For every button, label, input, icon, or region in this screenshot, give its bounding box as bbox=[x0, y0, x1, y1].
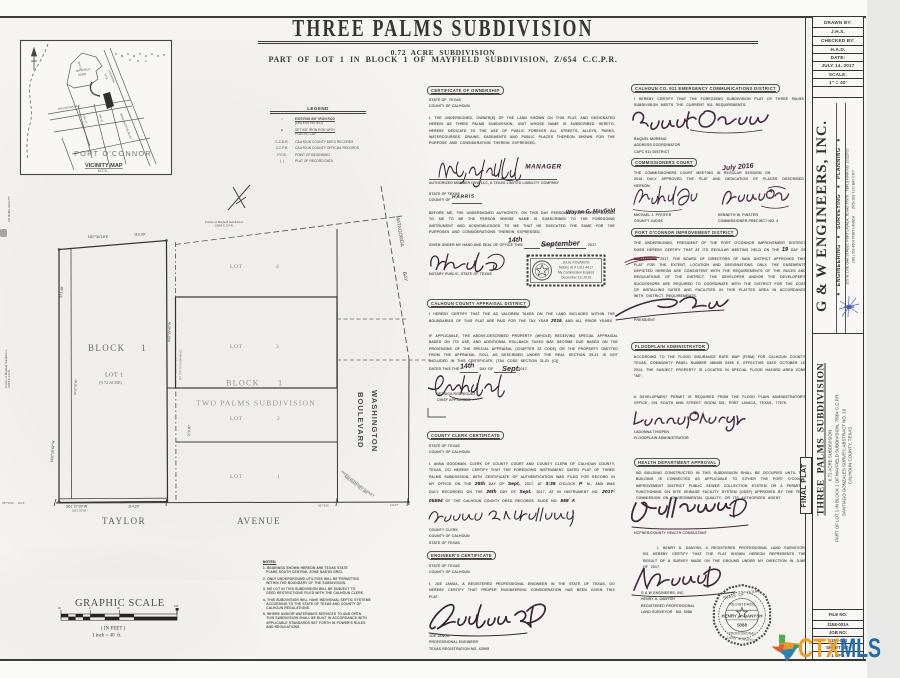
svg-text:Z/654 C.C.P.R.: Z/654 C.C.P.R. bbox=[215, 224, 234, 228]
svg-text:REGISTERED: REGISTERED bbox=[729, 601, 755, 606]
svg-text:LOT: LOT bbox=[230, 474, 243, 480]
svg-text:2: 2 bbox=[277, 416, 280, 422]
svg-text:(N32°30'W): (N32°30'W) bbox=[73, 379, 78, 395]
svg-text:40: 40 bbox=[58, 606, 61, 610]
svg-text:4: 4 bbox=[276, 264, 279, 270]
svg-text:LOT: LOT bbox=[230, 264, 243, 270]
svg-text:CTX: CTX bbox=[798, 633, 840, 663]
svg-text:160: 160 bbox=[174, 604, 179, 608]
svg-text:HENRY A. DANYSH: HENRY A. DANYSH bbox=[721, 613, 762, 618]
svg-text:(10' UTILITY EASEMENT): (10' UTILITY EASEMENT) bbox=[178, 349, 183, 380]
svg-text:LOT: LOT bbox=[230, 344, 243, 350]
svg-text:113.39': 113.39' bbox=[134, 233, 146, 237]
svg-text:ABSTRACT NO. 160: ABSTRACT NO. 160 bbox=[343, 475, 368, 496]
svg-text:1 inch = 40 ft.: 1 inch = 40 ft. bbox=[92, 634, 121, 639]
svg-text:N.T.S.: N.T.S. bbox=[98, 169, 108, 173]
svg-text:( IN FEET ): ( IN FEET ) bbox=[101, 627, 126, 632]
svg-text:JULIE KOVARCIK: JULIE KOVARCIK bbox=[562, 261, 590, 265]
svg-text:BLOCK: BLOCK bbox=[226, 379, 260, 388]
svg-text:N32°29'42"W: N32°29'42"W bbox=[167, 321, 172, 342]
svg-text:TWO PALMS SUBDIVISION: TWO PALMS SUBDIVISION bbox=[196, 399, 316, 408]
svg-text:LOT: LOT bbox=[230, 416, 243, 422]
svg-text:N57°30'18"E: N57°30'18"E bbox=[88, 235, 109, 239]
svg-text:WASHINGTON: WASHINGTON bbox=[370, 390, 379, 452]
svg-text:N32°29'42"W: N32°29'42"W bbox=[50, 440, 56, 462]
svg-text:271.48': 271.48' bbox=[59, 286, 64, 298]
svg-text:5088: 5088 bbox=[737, 623, 747, 628]
svg-text:MANAGER: MANAGER bbox=[525, 164, 561, 171]
svg-text:BAY: BAY bbox=[401, 271, 409, 282]
svg-text:Notary ID # 1311-4417: Notary ID # 1311-4417 bbox=[559, 266, 593, 270]
svg-text:1: 1 bbox=[141, 343, 146, 353]
svg-text:TAYLOR: TAYLOR bbox=[102, 516, 146, 526]
svg-text:BLOCK: BLOCK bbox=[88, 343, 126, 353]
svg-text:160.97': 160.97' bbox=[390, 503, 399, 507]
svg-text:AVENUE: AVENUE bbox=[237, 516, 281, 526]
svg-text:December 13, 2019: December 13, 2019 bbox=[561, 276, 591, 280]
svg-text:114.20': 114.20' bbox=[128, 505, 140, 509]
svg-text:PROFESSIONAL: PROFESSIONAL bbox=[729, 631, 756, 635]
svg-text:1: 1 bbox=[277, 474, 280, 480]
svg-text:BOULEVARD: BOULEVARD bbox=[356, 392, 365, 449]
svg-text:MATAGORDA: MATAGORDA bbox=[394, 215, 405, 248]
svg-text:LOT 1: LOT 1 bbox=[105, 373, 124, 379]
svg-text:279.30': 279.30' bbox=[187, 425, 191, 437]
svg-text:(0.72 ACRE): (0.72 ACRE) bbox=[99, 380, 123, 385]
svg-text:1: 1 bbox=[278, 379, 282, 388]
svg-text:MLS: MLS bbox=[840, 633, 881, 663]
svg-text:(S61°30'W): (S61°30'W) bbox=[72, 509, 86, 513]
svg-text:N57°30'E: N57°30'E bbox=[318, 504, 329, 508]
svg-text:My Commission Expires: My Commission Expires bbox=[558, 271, 595, 275]
svg-text:S57°30'W···· 161.5': S57°30'W···· 161.5' bbox=[2, 501, 25, 505]
svg-text:3: 3 bbox=[276, 344, 279, 350]
svg-text:PORT O'CONNOR: PORT O'CONNOR bbox=[74, 149, 152, 158]
